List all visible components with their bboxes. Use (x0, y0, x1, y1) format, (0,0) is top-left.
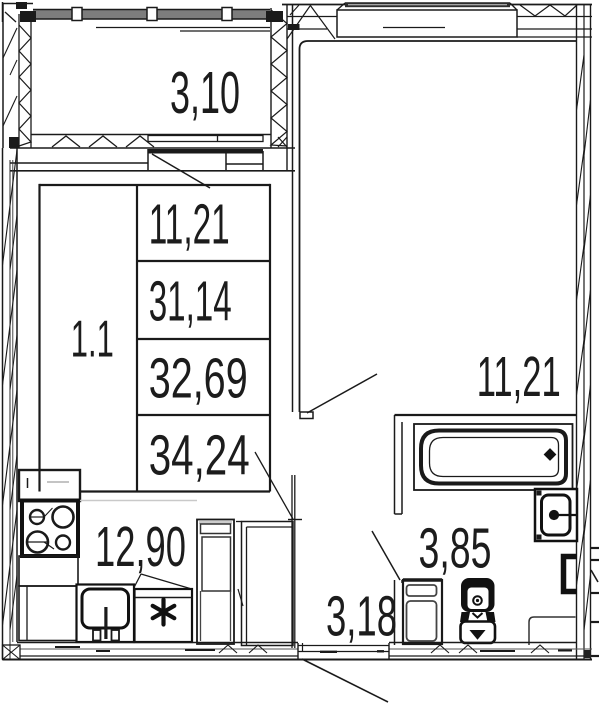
svg-text:1.1: 1.1 (71, 311, 114, 369)
svg-text:32,69: 32,69 (149, 347, 248, 411)
svg-text:3,85: 3,85 (419, 517, 492, 581)
svg-text:31,14: 31,14 (149, 270, 232, 334)
svg-text:11,21: 11,21 (149, 193, 230, 257)
svg-text:11,21: 11,21 (477, 345, 561, 409)
svg-text:12,90: 12,90 (95, 515, 186, 579)
svg-text:3,10: 3,10 (170, 60, 240, 126)
svg-text:3,18: 3,18 (326, 585, 397, 649)
svg-text:34,24: 34,24 (149, 424, 250, 488)
